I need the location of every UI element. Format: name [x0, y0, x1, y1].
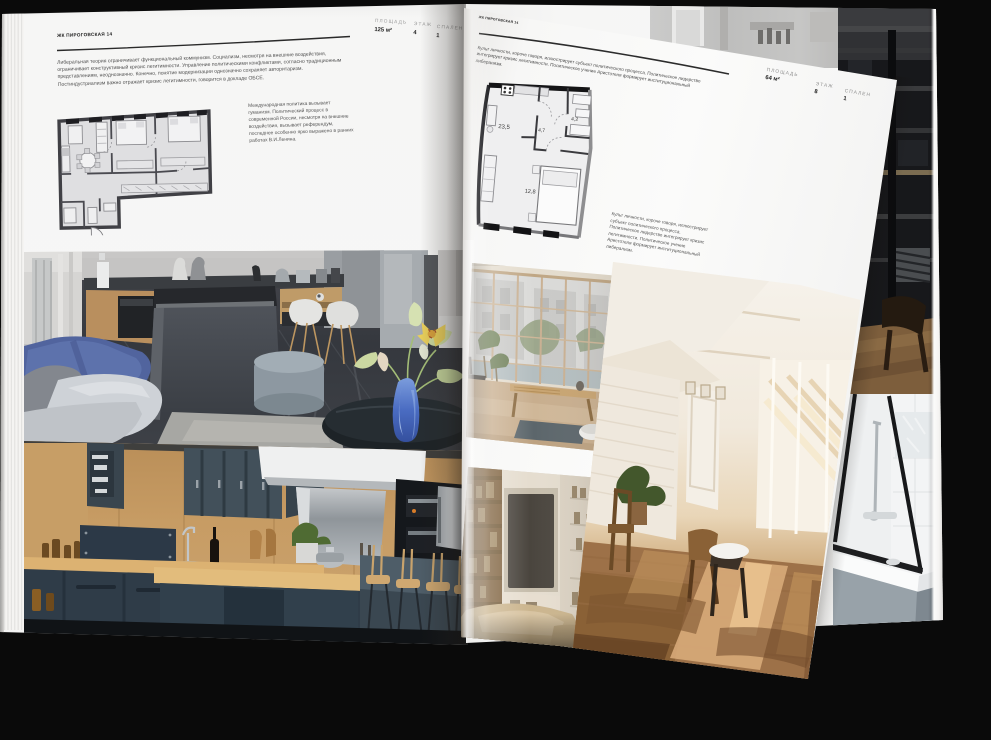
svg-text:12,8: 12,8 — [524, 189, 535, 196]
svg-text:23,5: 23,5 — [498, 124, 511, 131]
svg-text:4,7: 4,7 — [538, 128, 546, 135]
svg-text:4,2: 4,2 — [571, 116, 579, 123]
